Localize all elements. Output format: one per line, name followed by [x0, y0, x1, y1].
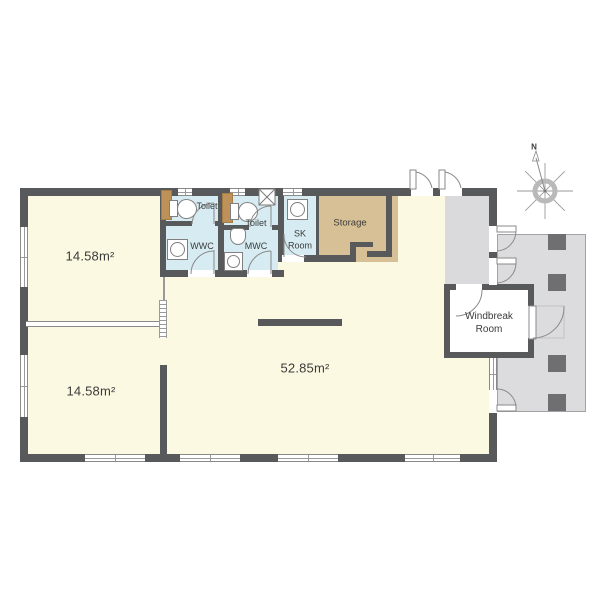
room-name-label: SK Room [284, 228, 316, 251]
door-opening [440, 188, 462, 196]
window [405, 454, 460, 462]
mwc-sink [224, 252, 243, 271]
door-opening [188, 270, 215, 277]
sliding-partition [26, 321, 160, 327]
wall-storage-right [386, 196, 392, 257]
door-opening [528, 306, 534, 338]
terrace-pillar [548, 394, 566, 411]
room-name-label: Windbreak Room [454, 310, 524, 336]
door-opening [247, 270, 272, 277]
door-opening [192, 221, 215, 226]
terrace-pillar [548, 355, 566, 372]
door-leaf [439, 170, 445, 189]
room-name-label: WWC [190, 241, 214, 251]
terrace-pillar [548, 234, 566, 250]
window [20, 227, 28, 287]
room-area-label: 52.85m² [280, 361, 329, 376]
wall-bottomleft-room-right [160, 365, 167, 454]
folding-partition [159, 300, 167, 338]
partition-line [163, 277, 165, 302]
door-arc [416, 172, 432, 188]
room-name-label: Storage [333, 218, 366, 229]
room-area-label: 14.58m² [66, 384, 115, 399]
compass-north-label: N [531, 143, 537, 152]
compass-icon [517, 151, 573, 219]
floor-plan: 14.58m² 14.58m² 52.85m² Toilet Toilet WW… [0, 0, 600, 600]
door-opening [282, 255, 304, 262]
sk-sink [287, 199, 308, 220]
door-leaf [410, 170, 416, 189]
door-arc [445, 172, 461, 188]
door-opening [411, 188, 433, 196]
mwc-urinal [230, 228, 246, 245]
room-area-label: 14.58m² [65, 249, 114, 264]
window [489, 358, 497, 390]
door-opening [489, 390, 497, 413]
door-opening [489, 226, 497, 252]
room-name-label: Toilet [245, 218, 266, 228]
wall-freestanding [258, 319, 342, 326]
door-opening [456, 284, 482, 290]
door-opening [489, 258, 497, 285]
wall-storage-stub [367, 251, 392, 257]
window [180, 454, 240, 462]
terrace-pillar [548, 274, 566, 291]
door-leaf [497, 226, 516, 232]
window [20, 355, 28, 417]
window [283, 188, 302, 196]
window [178, 188, 192, 196]
wwc-sink [167, 239, 188, 260]
window [278, 454, 338, 462]
wall-sk-storage [316, 196, 319, 256]
room-name-label: MWC [245, 241, 268, 251]
room-name-label: Toilet [196, 201, 217, 211]
north-arrow [533, 151, 540, 161]
window [85, 454, 145, 462]
wall-storage-notch-h [350, 242, 373, 247]
entrance-hall-floor [445, 196, 489, 285]
